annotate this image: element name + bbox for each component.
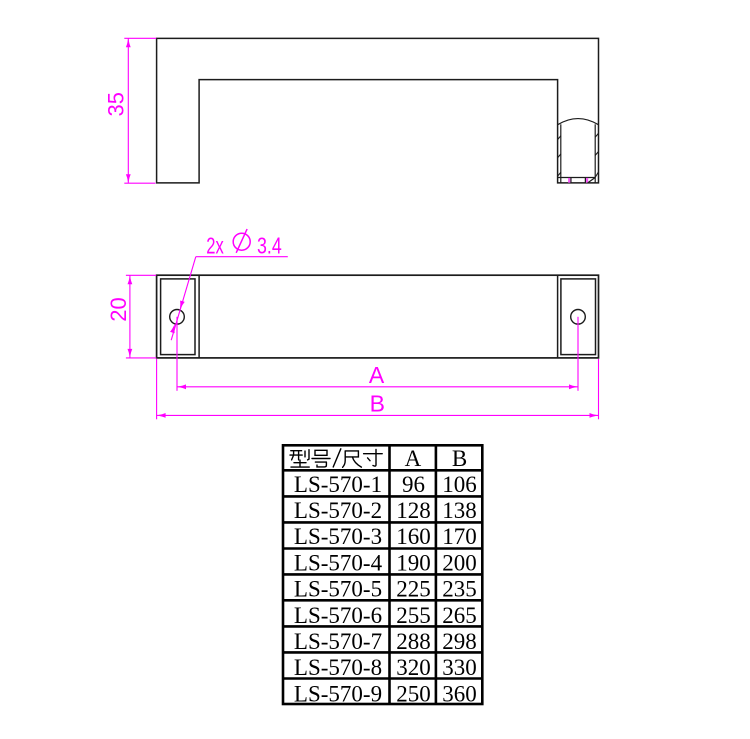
svg-text:LS-570-2: LS-570-2	[294, 498, 382, 523]
svg-text:B: B	[370, 390, 385, 416]
svg-text:298: 298	[442, 629, 477, 654]
svg-text:A: A	[405, 446, 422, 471]
svg-text:265: 265	[442, 603, 477, 628]
svg-text:128: 128	[396, 498, 431, 523]
svg-text:106: 106	[442, 472, 477, 497]
svg-text:160: 160	[396, 524, 431, 549]
svg-text:138: 138	[442, 498, 477, 523]
svg-text:190: 190	[396, 550, 431, 575]
svg-text:A: A	[369, 362, 385, 388]
svg-text:225: 225	[396, 577, 431, 602]
svg-text:LS-570-5: LS-570-5	[294, 577, 382, 602]
svg-text:200: 200	[442, 550, 477, 575]
svg-text:LS-570-1: LS-570-1	[294, 472, 382, 497]
svg-text:LS-570-4: LS-570-4	[294, 550, 383, 575]
svg-text:LS-570-7: LS-570-7	[294, 629, 382, 654]
svg-text:320: 320	[396, 655, 431, 680]
svg-text:LS-570-6: LS-570-6	[294, 603, 382, 628]
svg-text:330: 330	[442, 655, 477, 680]
svg-text:255: 255	[396, 603, 431, 628]
svg-text:35: 35	[104, 92, 129, 116]
svg-text:LS-570-9: LS-570-9	[294, 681, 382, 706]
svg-text:288: 288	[396, 629, 431, 654]
svg-text:LS-570-8: LS-570-8	[294, 655, 382, 680]
svg-text:LS-570-3: LS-570-3	[294, 524, 382, 549]
svg-text:96: 96	[402, 472, 425, 497]
svg-text:2x: 2x	[206, 232, 224, 258]
svg-text:250: 250	[396, 681, 431, 706]
svg-text:360: 360	[442, 681, 477, 706]
svg-text:20: 20	[106, 297, 131, 321]
svg-text:170: 170	[442, 524, 477, 549]
svg-text:235: 235	[442, 577, 477, 602]
svg-text:B: B	[452, 446, 467, 471]
svg-text:3.4: 3.4	[257, 232, 282, 258]
